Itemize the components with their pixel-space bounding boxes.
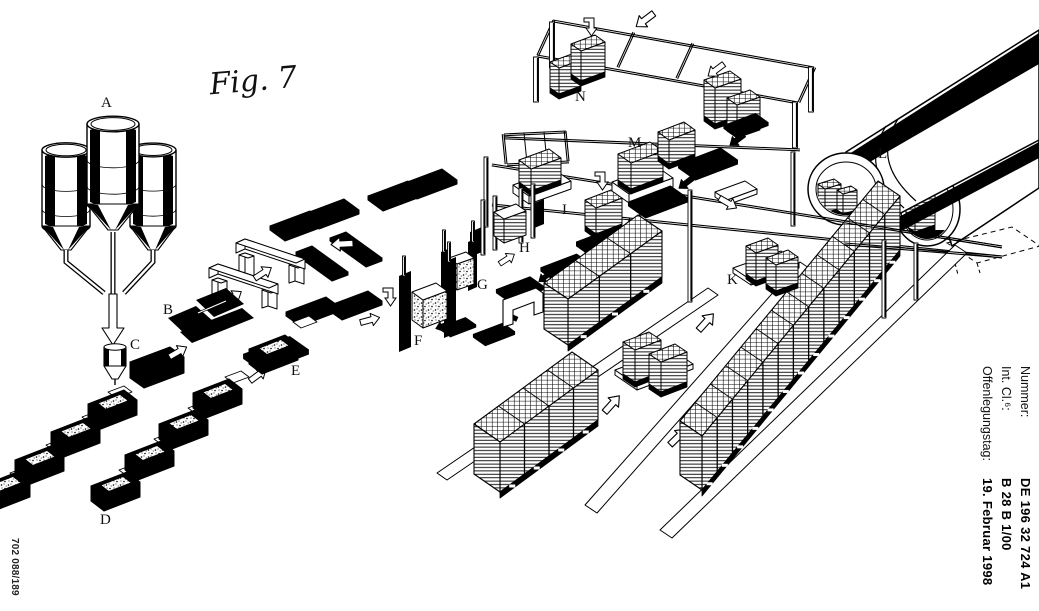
part-label-H: H [519, 240, 530, 256]
part-label-C: C [130, 337, 140, 353]
patent-header-row: Int. Cl.⁶:B 28 B 1/00 [997, 366, 1016, 611]
patent-number-label: Nummer: [1018, 366, 1032, 478]
part-label-N: N [575, 89, 586, 105]
platform-K [733, 238, 799, 296]
patent-intcl-label: Int. Cl.⁶: [999, 366, 1013, 478]
patent-date-value: 19. Februar 1998 [980, 478, 995, 585]
clamp-H [470, 184, 544, 268]
patent-header: Nummer:DE 196 32 724 A1 Int. Cl.⁶:B 28 B… [978, 366, 1035, 611]
patent-intcl-value: B 28 B 1/00 [999, 478, 1014, 551]
part-label-D: D [100, 512, 111, 528]
part-label-M: M [628, 135, 641, 151]
part-label-A: A [101, 95, 112, 111]
patent-header-row: Offenlegungstag:19. Februar 1998 [978, 366, 997, 611]
patent-date-label: Offenlegungstag: [980, 366, 994, 478]
filling-funnel-C [104, 344, 126, 385]
patent-header-row: Nummer:DE 196 32 724 A1 [1016, 366, 1035, 611]
part-label-G: G [477, 277, 488, 293]
patent-number-value: DE 196 32 724 A1 [1018, 478, 1033, 589]
print-code: 702 088/189 [7, 538, 20, 611]
silos-A [42, 116, 176, 345]
part-label-B: B [163, 302, 173, 318]
fig-title: Fig. 7 [207, 60, 299, 103]
part-label-E: E [291, 363, 300, 379]
part-label-K: K [727, 272, 738, 288]
part-label-L: L [878, 146, 887, 162]
patent-drawing-sheet: Fig. 7 A B C D E F G H I K L M N Nummer:… [0, 0, 1039, 611]
chute-B [168, 288, 254, 343]
figure-7-diagram: Fig. 7 A B C D E F G H I K L M N [0, 0, 1039, 611]
part-label-F: F [414, 333, 422, 349]
part-label-I: I [562, 202, 567, 218]
